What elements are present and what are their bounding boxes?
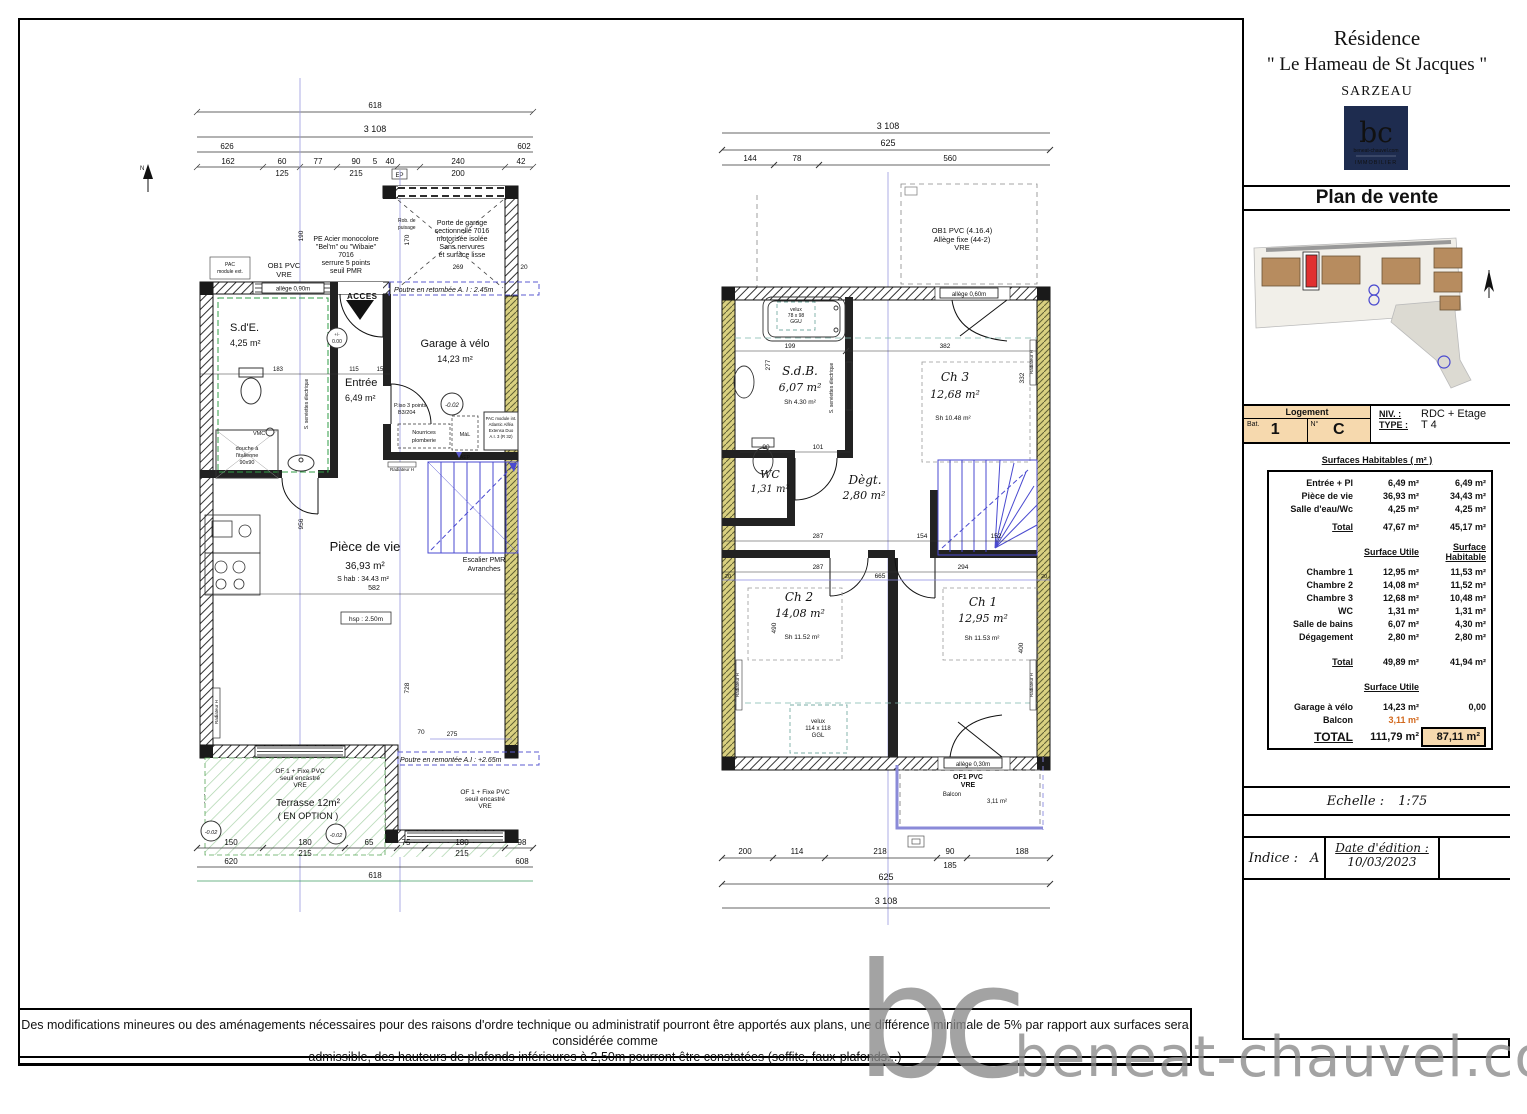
svg-text:665: 665 (875, 573, 886, 580)
rdc-annotations-top: PAC module ext. OB1 PVC VRE PE Acier mon… (210, 218, 489, 279)
piece-area: 36,93 m² (345, 561, 385, 572)
disclaimer-line1: Des modifications mineures ou des aménag… (20, 1017, 1190, 1049)
ch3-area: 12,68 m² (930, 388, 980, 401)
svg-text:294: 294 (958, 564, 969, 571)
svg-text:602: 602 (517, 142, 531, 151)
svg-text:60: 60 (278, 157, 287, 166)
residence-label: Résidence (1244, 26, 1510, 51)
total-rdc-row: Total47,67 m²45,17 m² (1269, 520, 1491, 533)
svg-text:"Bel'm" ou "Wibaie": "Bel'm" ou "Wibaie" (316, 244, 377, 251)
svg-text:-0.02: -0.02 (330, 833, 343, 839)
svg-text:188: 188 (1015, 847, 1029, 856)
balcon-row: Balcon3,11 m² (1269, 713, 1491, 726)
etage-bottom-dims: 200 114 218 90 188 185 625 3 108 (719, 847, 1053, 908)
svg-text:Avranches: Avranches (468, 566, 501, 573)
utile-only-header: Surface Utile (1269, 680, 1491, 693)
indice-row: Indice : A Date d'édition : 10/03/2023 (1244, 836, 1510, 880)
svg-text:Radiateur H: Radiateur H (390, 467, 414, 472)
svg-text:65: 65 (365, 838, 374, 847)
bathtub-icon (763, 297, 845, 341)
svg-text:MàL: MàL (460, 432, 471, 438)
svg-text:180: 180 (455, 838, 469, 847)
svg-text:GGL: GGL (812, 733, 825, 739)
svg-text:VRE: VRE (478, 803, 492, 810)
svg-text:277: 277 (765, 359, 772, 370)
svg-text:620: 620 (224, 857, 238, 866)
disclaimer-box: Des modifications mineures ou des aménag… (18, 1008, 1192, 1066)
empty-cell (1440, 838, 1510, 878)
svg-text:Sh 11.53 m²: Sh 11.53 m² (965, 635, 1001, 642)
ch1-area: 12,95 m² (958, 612, 1008, 625)
svg-text:OF1 PVC: OF1 PVC (953, 774, 983, 781)
svg-text:90: 90 (946, 847, 955, 856)
svg-text:42: 42 (517, 157, 526, 166)
svg-text:618: 618 (368, 101, 382, 110)
svg-text:Radiateur H: Radiateur H (735, 673, 740, 697)
svg-text:200: 200 (738, 847, 752, 856)
svg-text:OF 1 + Fixe PVC: OF 1 + Fixe PVC (460, 789, 510, 796)
sde-room: S.d'E. 4,25 m² VMC douche à l'italienne … (216, 298, 328, 478)
svg-text:183: 183 (273, 367, 284, 373)
svg-text:Sh 11.52 m²: Sh 11.52 m² (785, 634, 821, 641)
residence-name: " Le Hameau de St Jacques " (1244, 54, 1510, 76)
svg-text:Poutre en retombée A. I : 2.45: Poutre en retombée A. I : 2.45m (394, 287, 494, 294)
svg-text:626: 626 (220, 142, 234, 151)
svg-text:VRE: VRE (961, 782, 976, 789)
etage-top-dims: 3 108 625 144 78 560 (719, 121, 1053, 168)
ob1-etage-label: OB1 PVC (4.16.4) Allège fixe (44-2) VRE (932, 226, 993, 252)
table-row: Pièce de vie36,93 m²34,43 m² (1269, 489, 1491, 502)
svg-text:3 108: 3 108 (875, 896, 898, 906)
svg-text:seuil PMR: seuil PMR (330, 268, 362, 275)
svg-text:P.iso 3 points: P.iso 3 points (394, 403, 427, 409)
svg-text:215: 215 (349, 169, 363, 178)
svg-text:VRE: VRE (276, 270, 291, 279)
ep-label: EP (395, 173, 403, 179)
svg-text:77: 77 (314, 157, 323, 166)
svg-text:plomberie: plomberie (412, 438, 436, 444)
plan-title: Plan de vente (1244, 185, 1510, 211)
terrasse-option: ( EN OPTION ) (278, 811, 339, 821)
toilet-icon (239, 368, 263, 377)
degt-area: 2,80 m² (842, 489, 886, 502)
svg-text:3 108: 3 108 (877, 121, 900, 131)
site-north-arrow (1484, 270, 1494, 298)
table-row: Chambre 214,08 m²11,52 m² (1269, 578, 1491, 591)
svg-text:115: 115 (349, 367, 359, 373)
seche-serviettes-label: S. serviettes électrique (829, 362, 835, 413)
svg-text:125: 125 (275, 169, 289, 178)
svg-text:332: 332 (1019, 372, 1026, 383)
svg-text:douche à: douche à (236, 446, 260, 452)
seche-serviettes-label: S. serviettes électrique (304, 378, 310, 429)
indice-cell: Indice : A (1244, 838, 1324, 878)
svg-text:serrure 5 points: serrure 5 points (322, 260, 371, 267)
svg-text:215: 215 (298, 849, 312, 858)
svg-text:et surface lisse: et surface lisse (439, 252, 486, 259)
ch2-name: Ch 2 (785, 590, 813, 604)
floorplan-rdc: N 618 3 108 626 602 162 60 77 90 5 40 24… (60, 60, 640, 920)
allege-060-label: allège 0,60m (952, 292, 986, 298)
svg-text:560: 560 (943, 154, 957, 163)
svg-text:90x90: 90x90 (240, 460, 255, 466)
svg-text:OB1 PVC: OB1 PVC (268, 261, 301, 270)
rdc-top-dimension-lines: 618 3 108 626 602 162 60 77 90 5 40 240 … (194, 101, 536, 179)
garage-area: 14,23 m² (437, 354, 473, 364)
velux-ggl: velux 114 x 118 GGL (790, 705, 847, 753)
piece-name: Pièce de vie (330, 539, 401, 554)
svg-text:seuil encastré: seuil encastré (280, 775, 320, 782)
logement-table: Logement Bat. 1 N° C NIV. : RDC + Etage … (1244, 404, 1510, 444)
escalier-label: Escalier PMR (463, 557, 505, 564)
sdb-name: S.d.B. (782, 364, 818, 378)
svg-text:20: 20 (1041, 574, 1047, 580)
svg-text:OB1 PVC (4.16.4): OB1 PVC (4.16.4) (932, 226, 993, 235)
highlighted-unit (1306, 255, 1317, 287)
svg-text:15: 15 (377, 367, 384, 373)
svg-text:114: 114 (791, 847, 804, 856)
grand-total-row: TOTAL111,79 m²87,11 m² (1269, 726, 1491, 748)
ch3-name: Ch 3 (941, 370, 970, 384)
svg-text:AEP: AEP (460, 455, 471, 461)
echelle-row: Echelle : 1:75 (1244, 786, 1510, 816)
degt-name: Dègt. (847, 473, 881, 487)
wc-area: 1,31 m² (751, 484, 790, 495)
bat-cell: Bat. 1 (1244, 419, 1307, 442)
svg-text:ACCES: ACCES (347, 292, 378, 301)
wc-name: WC (760, 468, 780, 481)
svg-text:A.I. 3 (R 32): A.I. 3 (R 32) (489, 434, 513, 439)
table-row: Salle de bains6,07 m²4,30 m² (1269, 617, 1491, 630)
svg-text:5: 5 (373, 157, 378, 166)
svg-text:275: 275 (447, 731, 458, 738)
svg-text:20: 20 (520, 264, 528, 271)
rdc-blue-dims: 269 20 275 70 170 190 956 728 267 (204, 230, 528, 804)
city-label: SARZEAU (1244, 84, 1510, 100)
svg-text:+/-: +/- (334, 332, 340, 337)
svg-text:287: 287 (813, 533, 824, 540)
svg-text:170: 170 (404, 234, 411, 245)
north-arrow: N (140, 164, 153, 192)
svg-text:608: 608 (515, 857, 529, 866)
sde-name: S.d'E. (230, 322, 259, 334)
svg-text:Atlantic Alféa: Atlantic Alféa (489, 422, 514, 427)
svg-text:Extensa Duo: Extensa Duo (489, 428, 514, 433)
svg-text:490: 490 (771, 622, 778, 633)
sink-icon (288, 455, 314, 471)
svg-text:150: 150 (224, 838, 238, 847)
svg-text:3 108: 3 108 (364, 124, 387, 134)
svg-text:motorisée isolée: motorisée isolée (437, 236, 488, 243)
svg-text:OF 1 + Fixe PVC: OF 1 + Fixe PVC (275, 768, 325, 775)
svg-text:162: 162 (221, 157, 235, 166)
piece-shab: S hab : 34.43 m² (337, 576, 389, 583)
niv-row: NIV. : RDC + Etage (1379, 408, 1510, 419)
balcon-name: Balcon (943, 792, 961, 798)
sink-icon (734, 366, 754, 398)
svg-text:215: 215 (455, 849, 469, 858)
svg-text:956: 956 (298, 518, 305, 529)
date-cell: Date d'édition : 10/03/2023 (1324, 838, 1440, 878)
svg-text:B3/204: B3/204 (398, 410, 415, 416)
column-headers: Surface UtileSurface Habitable (1269, 545, 1491, 558)
svg-text:Nourrices: Nourrices (412, 430, 436, 436)
svg-text:velux: velux (811, 719, 825, 725)
logement-header: Logement (1244, 406, 1370, 419)
svg-text:78: 78 (793, 154, 802, 163)
svg-text:40: 40 (386, 157, 395, 166)
svg-text:98: 98 (518, 838, 527, 847)
svg-text:Radiateur H: Radiateur H (214, 700, 219, 724)
svg-text:101: 101 (813, 444, 824, 451)
agency-logo: bc beneat-chauvel.com IMMOBILIER (1344, 106, 1408, 170)
svg-text:728: 728 (404, 682, 411, 693)
svg-text:625: 625 (880, 138, 895, 148)
logo-tagline: IMMOBILIER (1355, 160, 1397, 166)
svg-text:114 x 118: 114 x 118 (805, 726, 831, 732)
svg-text:VRE: VRE (293, 782, 307, 789)
svg-text:PE Acier monocolore: PE Acier monocolore (313, 236, 378, 243)
svg-text:-0.02: -0.02 (445, 403, 459, 409)
svg-text:625: 625 (878, 872, 893, 882)
svg-text:185: 185 (943, 861, 957, 870)
terrasse-name: Terrasse 12m² (276, 798, 341, 809)
svg-text:Radiateur H: Radiateur H (1029, 350, 1034, 374)
svg-text:200: 200 (451, 169, 465, 178)
svg-text:Rob. de: Rob. de (398, 218, 416, 224)
garage-velo-room: Garage à vélo 14,23 m² -0.02 Nourrices p… (398, 338, 518, 461)
svg-text:240: 240 (451, 157, 465, 166)
garage-row: Garage à vélo14,23 m²0,00 (1269, 700, 1491, 713)
floorplan-etage: 3 108 625 144 78 560 OB1 PVC (4.16.4) Al… (700, 100, 1070, 930)
svg-text:20: 20 (725, 574, 731, 580)
svg-text:seuil encastré: seuil encastré (465, 796, 505, 803)
svg-text:GGU: GGU (790, 319, 802, 325)
balcon-area: 3,11 m² (987, 799, 1007, 805)
svg-text:582: 582 (368, 585, 380, 592)
allege-090-label: allège 0,90m (276, 287, 310, 293)
allege-030-label: allège 0,30m (956, 762, 990, 768)
entree-name: Entrée (345, 377, 377, 389)
garage-name: Garage à vélo (420, 338, 489, 350)
svg-text:PAC: PAC (225, 262, 235, 268)
svg-text:75: 75 (402, 838, 411, 847)
svg-text:269: 269 (453, 264, 464, 271)
svg-text:180: 180 (298, 838, 312, 847)
disclaimer-line2: admissible, des hauteurs de plafonds inf… (20, 1049, 1190, 1065)
svg-text:618: 618 (368, 871, 382, 880)
svg-text:N: N (140, 166, 144, 172)
svg-text:Sh 10.48 m²: Sh 10.48 m² (935, 415, 971, 422)
svg-text:144: 144 (743, 154, 757, 163)
svg-text:Sans nervures: Sans nervures (439, 244, 485, 251)
svg-text:218: 218 (873, 847, 887, 856)
num-cell: N° C (1307, 419, 1371, 442)
piece-de-vie-room: Pièce de vie 36,93 m² S hab : 34.43 m² h… (330, 539, 401, 624)
svg-text:287: 287 (813, 564, 824, 571)
svg-text:154: 154 (917, 533, 928, 540)
svg-text:Porte de garage: Porte de garage (437, 220, 487, 227)
svg-text:7016: 7016 (338, 252, 354, 259)
title-block: Résidence " Le Hameau de St Jacques " SA… (1242, 18, 1510, 1040)
hsp-label: hsp : 2.50m (349, 616, 383, 623)
ch1-name: Ch 1 (969, 595, 997, 609)
total-etage-row: Total49,89 m²41,94 m² (1269, 655, 1491, 668)
svg-text:Poutre en remontée A.I : +2.65: Poutre en remontée A.I : +2.65m (400, 757, 502, 764)
table-row: Chambre 312,68 m²10,48 m² (1269, 591, 1491, 604)
surfaces-table: Entrée + Pl6,49 m²6,49 m² Pièce de vie36… (1267, 470, 1493, 750)
svg-text:PAC module int.: PAC module int. (486, 416, 517, 421)
surfaces-title: Surfaces Habitables ( m² ) (1244, 455, 1510, 465)
svg-text:VRE: VRE (954, 243, 969, 252)
vmc-label: VMC (253, 431, 265, 437)
table-row: WC1,31 m²1,31 m² (1269, 604, 1491, 617)
svg-text:70: 70 (417, 729, 425, 736)
svg-text:199: 199 (785, 343, 796, 350)
svg-text:l'italienne: l'italienne (236, 453, 259, 459)
svg-text:400: 400 (1018, 642, 1025, 653)
ch2-area: 14,08 m² (775, 607, 825, 620)
type-row: TYPE : T 4 (1379, 419, 1510, 430)
svg-text:90: 90 (762, 444, 770, 451)
svg-text:0.00: 0.00 (332, 339, 342, 345)
table-row: Dégagement2,80 m²2,80 m² (1269, 630, 1491, 643)
etage-top-door: allège 0,60m (935, 287, 1010, 341)
sdb-area: 6,07 m² (779, 381, 822, 394)
logo-site: beneat-chauvel.com (1353, 148, 1398, 154)
table-row: Entrée + Pl6,49 m²6,49 m² (1269, 476, 1491, 489)
table-row: Salle d'eau/Wc4,25 m²4,25 m² (1269, 502, 1491, 515)
svg-text:puisage: puisage (398, 225, 416, 231)
velux-ggu: velux 78 x 98 GGU (777, 302, 815, 330)
radiators-rdc: Radiateur H Radiateur H (213, 462, 416, 738)
table-row: Chambre 112,95 m²11,53 m² (1269, 565, 1491, 578)
svg-text:Sh 4.30 m²: Sh 4.30 m² (784, 399, 817, 406)
site-plan-thumbnail (1246, 210, 1508, 396)
svg-text:module ext.: module ext. (217, 269, 243, 275)
svg-text:sectionnelle 7016: sectionnelle 7016 (435, 228, 490, 235)
svg-text:90: 90 (352, 157, 361, 166)
sde-area: 4,25 m² (230, 338, 261, 348)
plan-de-vente-sheet: { "header": { "residence": "Résidence", … (0, 0, 1527, 1080)
svg-text:190: 190 (298, 230, 305, 241)
roof-outline (757, 184, 1037, 287)
etage-exterior-walls (722, 287, 1050, 770)
total-highlight-box: 87,11 m² (1421, 727, 1486, 747)
etage-inner-dims: 199 382 90 101 287 154 152 287 294 665 2… (722, 343, 1050, 653)
svg-text:Radiateur H: Radiateur H (1029, 673, 1034, 697)
svg-text:152: 152 (991, 533, 1002, 540)
svg-text:382: 382 (940, 343, 951, 350)
svg-text:-0.02: -0.02 (205, 830, 218, 836)
logo-initials: bc (1359, 116, 1393, 149)
entree-area: 6,49 m² (345, 393, 376, 403)
